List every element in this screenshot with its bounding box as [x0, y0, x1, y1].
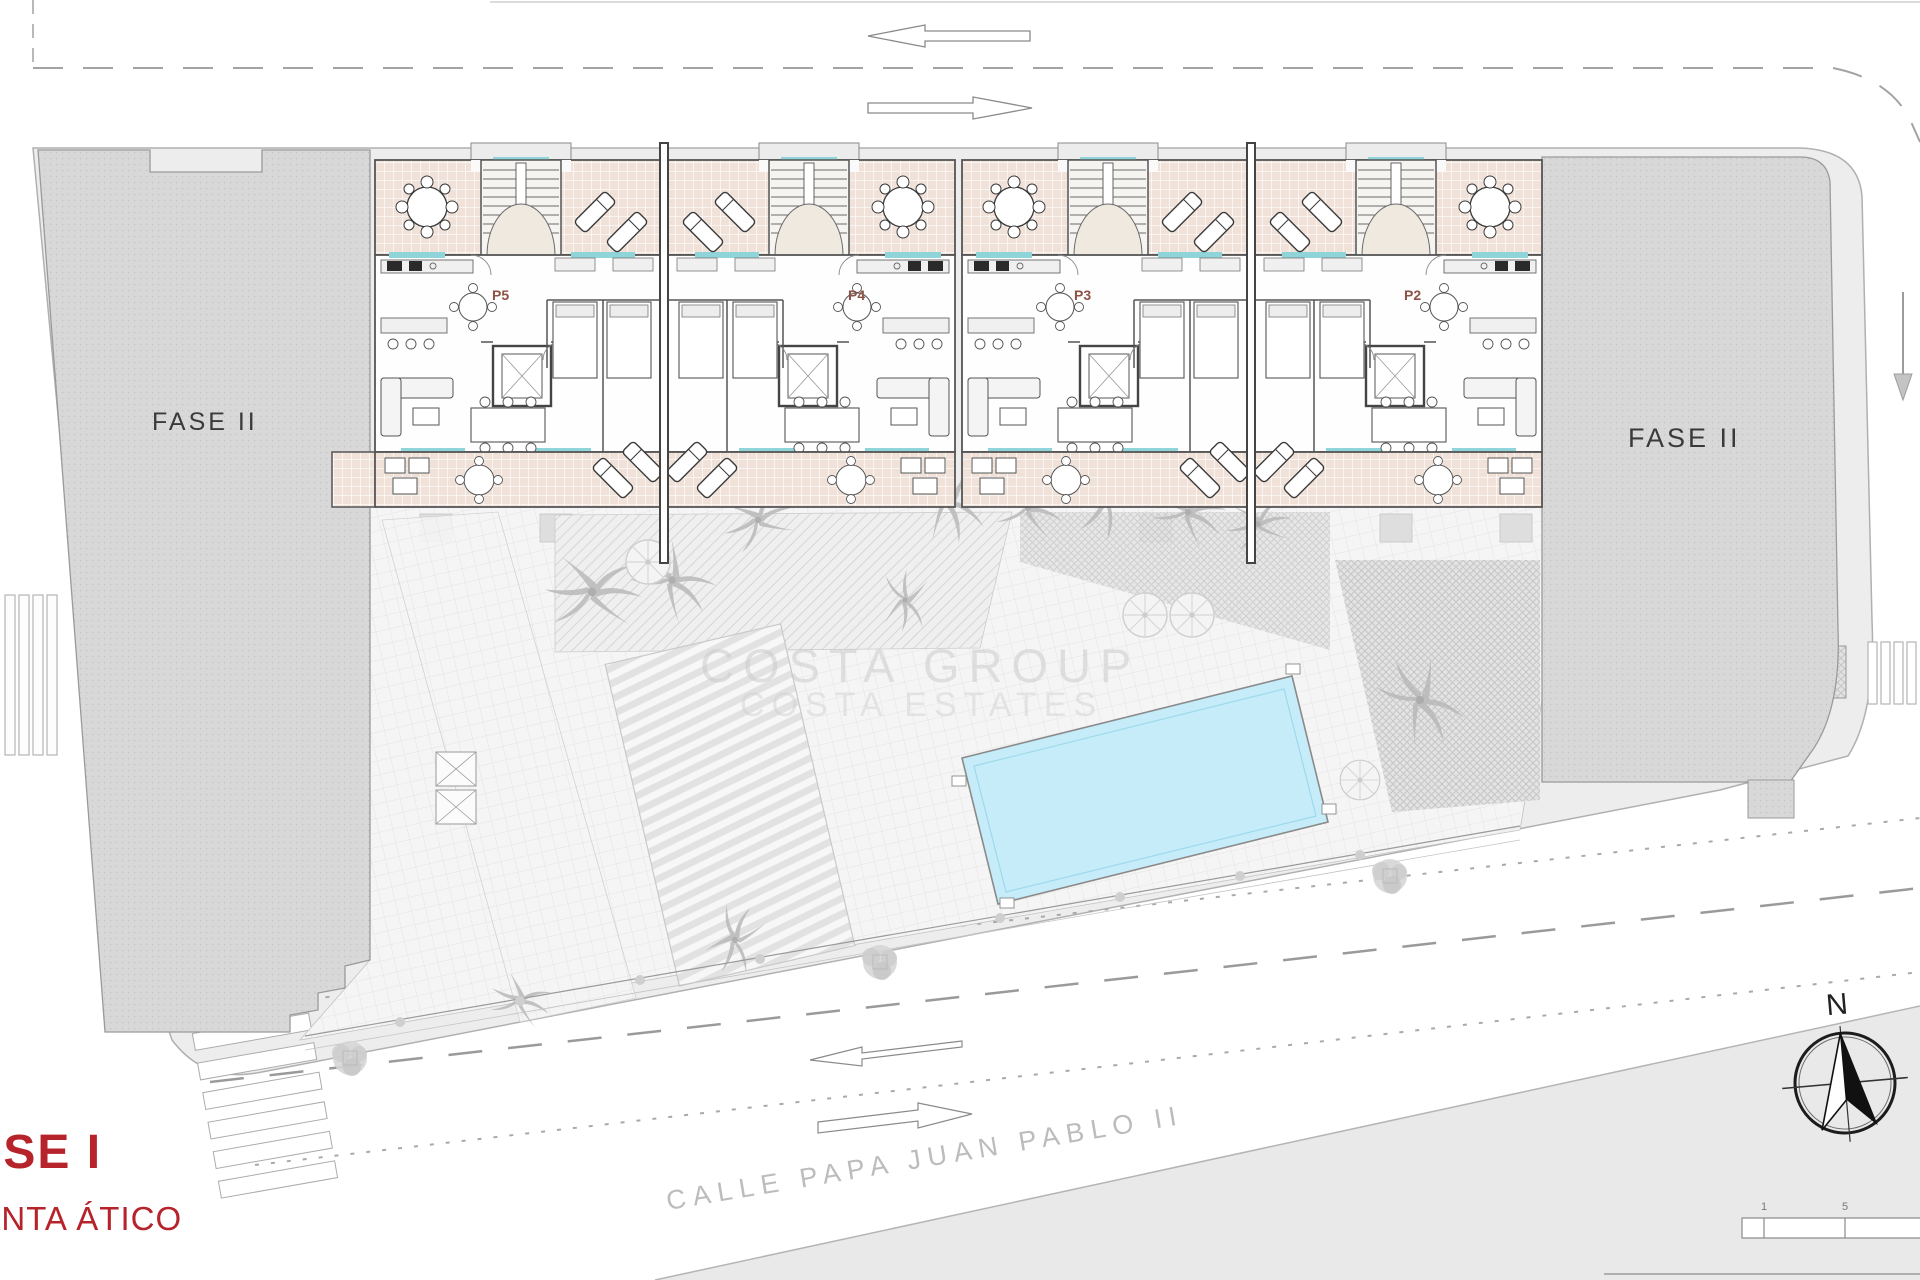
scale-tick-1: 1: [1761, 1201, 1767, 1213]
phase-title: FASE I: [0, 1126, 102, 1179]
fase2-block-left: [38, 150, 370, 1032]
watermark: COSTA GROUP COSTA ESTATES: [700, 639, 1140, 724]
unit-label-p4: P4: [848, 287, 865, 303]
unit-label-p3: P3: [1074, 287, 1091, 303]
garden: [300, 449, 1542, 1076]
unit-label-p2: P2: [1404, 287, 1421, 303]
site-plan-page: CALLE PAPA JUAN PABLO II: [0, 0, 1920, 1280]
arrow-left-icon: [868, 25, 1030, 47]
unit-p4: [666, 143, 955, 507]
fase2-left-label: FASE II: [152, 408, 258, 436]
apartment-building: P5 P4 P3 P2: [332, 143, 1542, 563]
arrow-right-icon: [868, 97, 1032, 119]
watermark-line2: COSTA ESTATES: [740, 686, 1103, 724]
unit-p3: [962, 143, 1251, 507]
site-plan-drawing: CALLE PAPA JUAN PABLO II: [0, 0, 1920, 1280]
unit-p5: [375, 143, 664, 507]
top-road: [33, 0, 1920, 142]
fase2-right-label: FASE II: [1628, 423, 1741, 453]
arrow-down-icon: [1894, 292, 1912, 400]
street-arrow-right-icon: [818, 1103, 972, 1133]
phase-subtitle: PLANTA ÁTICO: [0, 1200, 182, 1237]
watermark-line1: COSTA GROUP: [700, 639, 1140, 692]
unit-p2: [1253, 143, 1542, 507]
scale-tick-5: 5: [1842, 1201, 1848, 1213]
unit-label-p5: P5: [492, 287, 509, 303]
street-arrow-left-icon: [810, 1041, 962, 1066]
fase2-block-right: [1542, 157, 1838, 818]
compass-north-label: N: [1825, 988, 1849, 1023]
